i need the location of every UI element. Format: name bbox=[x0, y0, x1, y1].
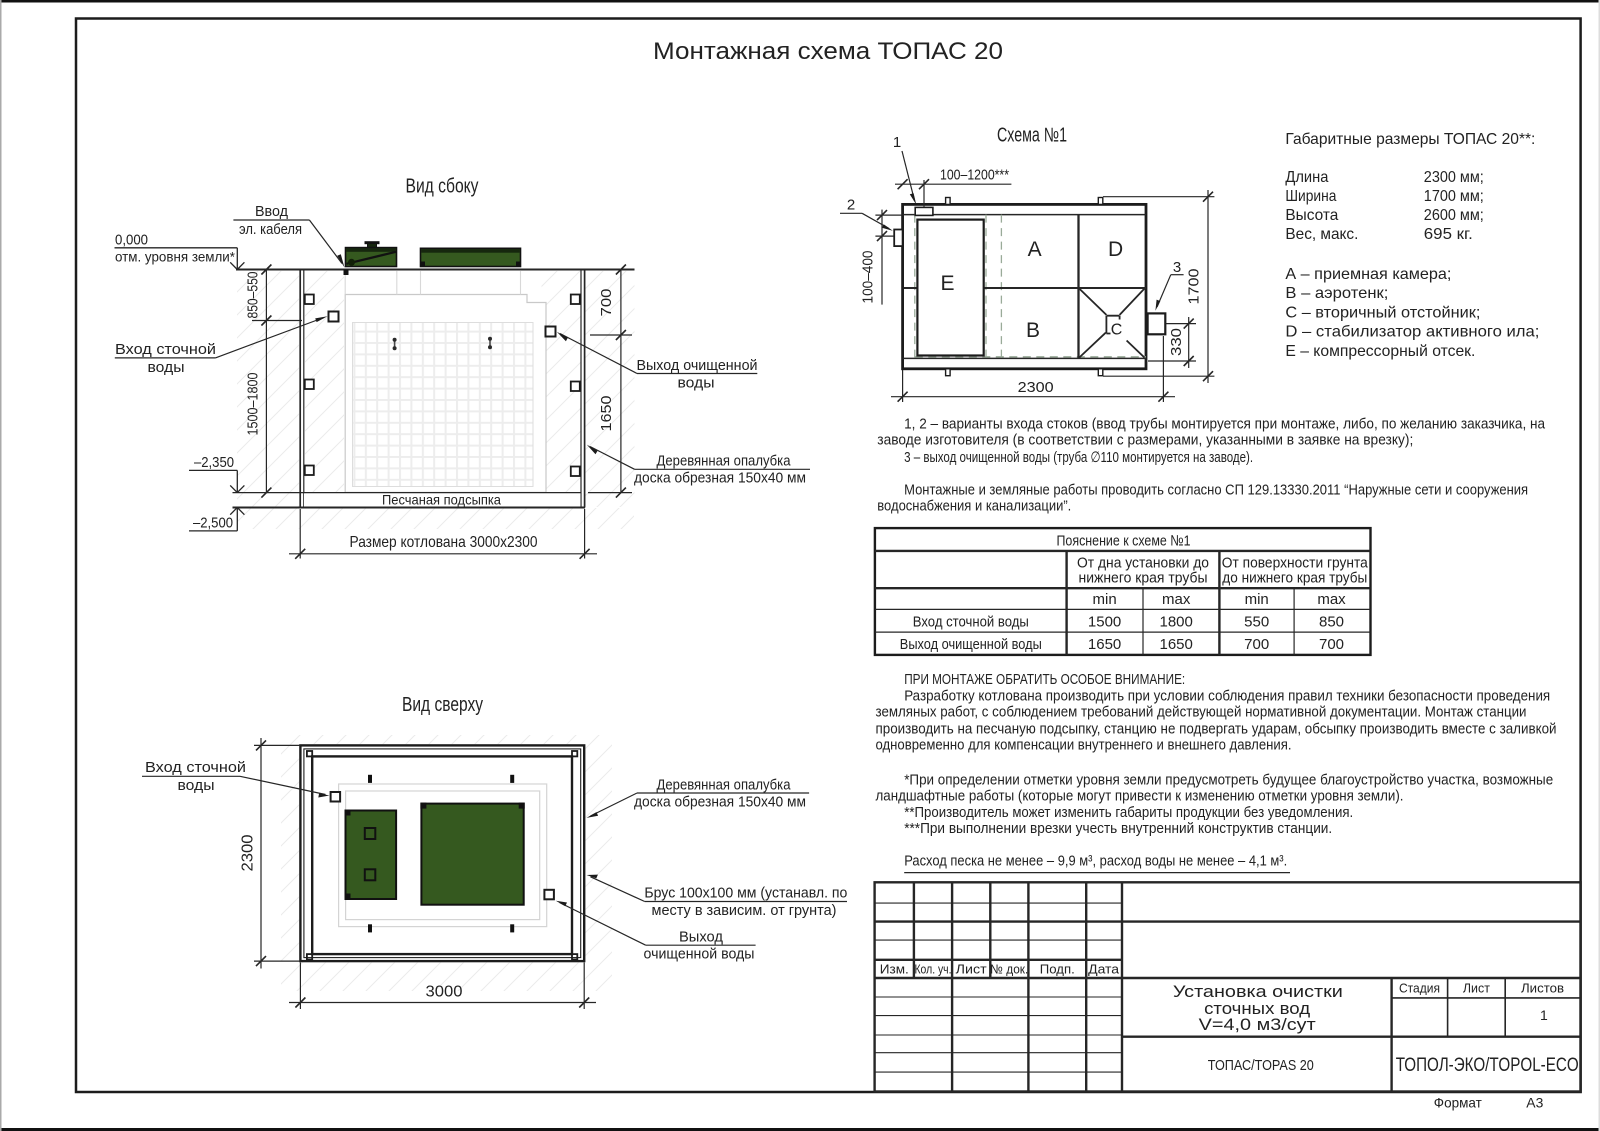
svg-text:700: 700 bbox=[1244, 636, 1269, 653]
svg-text:доска обрезная 150х40 мм: доска обрезная 150х40 мм bbox=[634, 470, 806, 487]
svg-text:производить на песчаную подсып: производить на песчаную подсыпку, станци… bbox=[876, 720, 1557, 737]
svg-text:Схема №1: Схема №1 bbox=[997, 125, 1067, 147]
svg-text:Вид сбоку: Вид сбоку bbox=[406, 176, 479, 198]
svg-text:водоснабжения и канализации”.: водоснабжения и канализации”. bbox=[877, 497, 1071, 514]
svg-text:***При выполнении врезки учест: ***При выполнении врезки учесть внутренн… bbox=[904, 820, 1332, 837]
svg-text:Монтажная схема ТОПАС 20: Монтажная схема ТОПАС 20 bbox=[653, 38, 1003, 65]
svg-text:Вход сточной: Вход сточной bbox=[145, 759, 246, 776]
svg-text:до нижнего края трубы: до нижнего края трубы bbox=[1222, 571, 1367, 587]
svg-text:B: B bbox=[1026, 319, 1040, 342]
svg-text:Вид сверху: Вид сверху bbox=[402, 694, 483, 716]
svg-text:1500: 1500 bbox=[1088, 614, 1121, 631]
svg-text:1700: 1700 bbox=[1186, 269, 1203, 305]
svg-text:Размер котлована 3000х2300: Размер котлована 3000х2300 bbox=[350, 534, 538, 551]
svg-text:Дата: Дата bbox=[1088, 962, 1120, 977]
svg-text:100–1200***: 100–1200*** bbox=[940, 167, 1009, 184]
svg-text:Брус 100х100 мм (устанавл. по: Брус 100х100 мм (устанавл. по bbox=[644, 885, 847, 902]
svg-text:1800: 1800 bbox=[1160, 614, 1193, 631]
svg-text:А3: А3 bbox=[1526, 1095, 1543, 1111]
svg-text:**Производитель может изменить: **Производитель может изменить габариты … bbox=[904, 804, 1353, 821]
svg-text:Стадия: Стадия bbox=[1399, 981, 1440, 996]
svg-text:min: min bbox=[1093, 591, 1117, 608]
svg-text:заводе изготовителя (в соответ: заводе изготовителя (в соответствии с ра… bbox=[877, 432, 1413, 449]
svg-text:ПРИ МОНТАЖЕ ОБРАТИТЬ ОСОБОЕ ВН: ПРИ МОНТАЖЕ ОБРАТИТЬ ОСОБОЕ ВНИМАНИЕ: bbox=[904, 671, 1185, 688]
svg-text:550: 550 bbox=[1244, 614, 1269, 631]
svg-text:D: D bbox=[1108, 238, 1123, 261]
svg-text:Деревянная опалубка: Деревянная опалубка bbox=[657, 453, 792, 470]
svg-text:–2,350: –2,350 bbox=[194, 454, 234, 471]
svg-text:Е – компрессорный отсек.: Е – компрессорный отсек. bbox=[1285, 343, 1475, 360]
svg-text:2600 мм;: 2600 мм; bbox=[1424, 207, 1484, 224]
svg-text:Лист: Лист bbox=[956, 962, 987, 977]
svg-text:1650: 1650 bbox=[1088, 636, 1121, 653]
svg-text:Выход: Выход bbox=[679, 929, 723, 946]
svg-text:Вход сточной: Вход сточной bbox=[115, 341, 216, 358]
svg-text:V=4,0 м3/сут: V=4,0 м3/сут bbox=[1199, 1015, 1316, 1034]
svg-text:Выход очищенной: Выход очищенной bbox=[637, 357, 758, 374]
svg-text:Ширина: Ширина bbox=[1285, 188, 1336, 205]
svg-text:3 – выход очищенной воды (труб: 3 – выход очищенной воды (труба ∅110 мон… bbox=[904, 449, 1253, 466]
svg-text:2: 2 bbox=[847, 197, 855, 214]
svg-text:A: A bbox=[1028, 238, 1042, 261]
svg-text:700: 700 bbox=[1319, 636, 1344, 653]
svg-text:Лист: Лист bbox=[1463, 981, 1490, 996]
svg-text:воды: воды bbox=[148, 359, 185, 376]
svg-text:№ док.: № док. bbox=[990, 962, 1028, 977]
svg-text:Подп.: Подп. bbox=[1040, 962, 1075, 977]
svg-text:700: 700 bbox=[598, 289, 615, 317]
svg-text:3: 3 bbox=[1173, 259, 1181, 276]
svg-text:Вход сточной воды: Вход сточной воды bbox=[913, 614, 1029, 631]
svg-text:max: max bbox=[1162, 591, 1191, 608]
svg-text:Высота: Высота bbox=[1285, 207, 1338, 224]
svg-text:2300: 2300 bbox=[240, 834, 257, 871]
svg-text:Вес, макс.: Вес, макс. bbox=[1285, 226, 1358, 243]
svg-text:1650: 1650 bbox=[598, 396, 615, 432]
svg-text:0,000: 0,000 bbox=[115, 232, 148, 249]
svg-text:ландшафтные работы (которые мо: ландшафтные работы (которые могут привес… bbox=[876, 788, 1404, 805]
svg-text:От дна установки до: От дна установки до bbox=[1077, 556, 1209, 572]
svg-text:1650: 1650 bbox=[1160, 636, 1193, 653]
svg-text:отм. уровня земли*: отм. уровня земли* bbox=[115, 249, 236, 265]
svg-text:3000: 3000 bbox=[426, 984, 463, 1001]
svg-text:Листов: Листов bbox=[1521, 981, 1564, 996]
svg-text:Изм.: Изм. bbox=[880, 962, 909, 977]
svg-text:D – стабилизатор активного ила: D – стабилизатор активного ила; bbox=[1285, 324, 1539, 341]
svg-text:C: C bbox=[1111, 322, 1123, 339]
svg-text:очищенной воды: очищенной воды bbox=[644, 946, 755, 963]
svg-text:Ввод: Ввод bbox=[255, 203, 288, 220]
svg-text:100–400: 100–400 bbox=[860, 251, 877, 304]
svg-text:2300 мм;: 2300 мм; bbox=[1424, 169, 1484, 186]
svg-text:земляных работ, с соблюдением: земляных работ, с соблюдением требований… bbox=[876, 704, 1527, 721]
svg-text:Габаритные размеры ТОПАС 20**:: Габаритные размеры ТОПАС 20**: bbox=[1285, 131, 1535, 148]
svg-text:Расход песка не менее – 9,9 м³: Расход песка не менее – 9,9 м³, расход в… bbox=[904, 853, 1287, 870]
svg-text:1, 2 – варианты входа стоков: 1, 2 – варианты входа стоков (ввод трубы… bbox=[904, 416, 1546, 433]
svg-text:Кол. уч.: Кол. уч. bbox=[915, 962, 952, 977]
svg-text:1700 мм;: 1700 мм; bbox=[1424, 188, 1484, 205]
svg-text:нижнего края трубы: нижнего края трубы bbox=[1079, 571, 1208, 587]
svg-text:Монтажные и земляные работы пр: Монтажные и земляные работы проводить со… bbox=[904, 482, 1528, 499]
svg-text:1500–1800: 1500–1800 bbox=[245, 373, 262, 436]
svg-text:850–550: 850–550 bbox=[245, 272, 262, 319]
svg-text:E: E bbox=[940, 272, 954, 295]
svg-text:А – приемная камера;: А – приемная камера; bbox=[1285, 266, 1451, 283]
svg-text:–2,500: –2,500 bbox=[193, 515, 233, 532]
svg-text:От поверхности грунта: От поверхности грунта bbox=[1222, 556, 1369, 572]
svg-text:Разработку котлована производи: Разработку котлована производить при усл… bbox=[904, 688, 1550, 705]
svg-text:одновременно для компенсации в: одновременно для компенсации внутреннего… bbox=[876, 736, 1292, 753]
svg-text:max: max bbox=[1317, 591, 1346, 608]
svg-text:min: min bbox=[1245, 591, 1269, 608]
svg-text:695 кг.: 695 кг. bbox=[1424, 226, 1473, 243]
svg-text:*При определении отметки уровн: *При определении отметки уровня земли пр… bbox=[904, 772, 1553, 789]
svg-text:Песчаная подсыпка: Песчаная подсыпка bbox=[382, 492, 501, 508]
svg-text:эл. кабеля: эл. кабеля bbox=[239, 221, 302, 238]
svg-text:Выход очищенной воды: Выход очищенной воды bbox=[900, 636, 1042, 653]
svg-text:1: 1 bbox=[893, 134, 901, 151]
svg-text:Формат: Формат bbox=[1434, 1095, 1483, 1111]
svg-text:воды: воды bbox=[178, 777, 215, 794]
svg-text:2300: 2300 bbox=[1018, 379, 1054, 396]
svg-text:Деревянная опалубка: Деревянная опалубка bbox=[657, 777, 792, 794]
svg-text:850: 850 bbox=[1319, 614, 1344, 631]
svg-text:доска обрезная 150х40 мм: доска обрезная 150х40 мм bbox=[634, 794, 806, 811]
svg-text:Длина: Длина bbox=[1285, 169, 1328, 186]
svg-text:воды: воды bbox=[678, 375, 715, 392]
svg-text:В – аэротенк;: В – аэротенк; bbox=[1285, 285, 1388, 302]
svg-text:ТОПОЛ-ЭКО/TOPOL-ECO: ТОПОЛ-ЭКО/TOPOL-ECO bbox=[1396, 1055, 1579, 1076]
svg-text:ТОПАС/TOPAS 20: ТОПАС/TOPAS 20 bbox=[1208, 1057, 1314, 1074]
svg-text:С – вторичный отстойник;: С – вторичный отстойник; bbox=[1285, 305, 1480, 322]
svg-text:1: 1 bbox=[1540, 1007, 1548, 1023]
svg-text:330: 330 bbox=[1168, 328, 1185, 356]
svg-text:месту в зависим. от грунта): месту в зависим. от грунта) bbox=[652, 902, 837, 919]
svg-text:Пояснение к схеме №1: Пояснение к схеме №1 bbox=[1057, 533, 1191, 550]
